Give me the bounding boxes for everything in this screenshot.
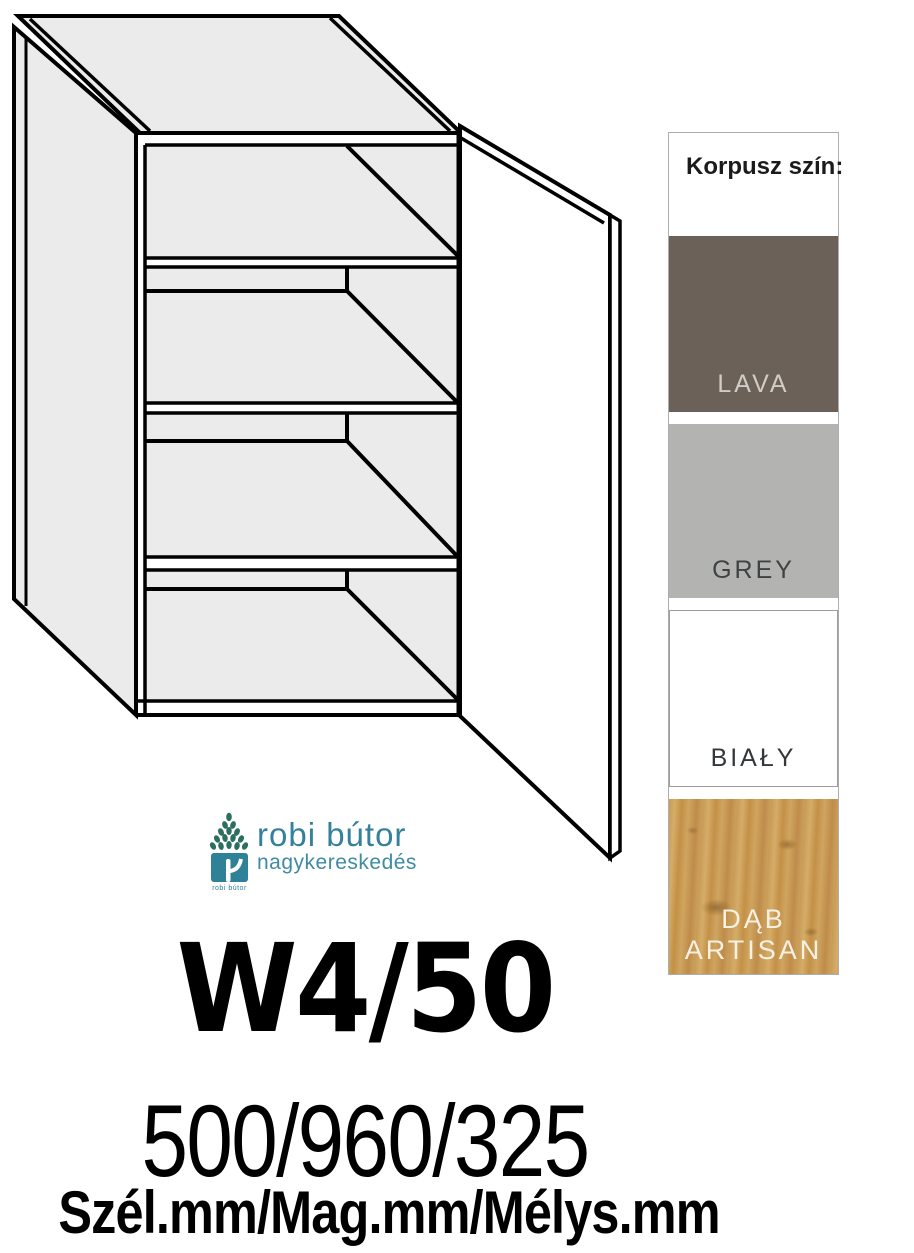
color-swatch-panel: Korpusz szín: LAVA GREY BIAŁY DĄB ARTISA… bbox=[668, 132, 839, 975]
swatch-panel-title: Korpusz szín: bbox=[686, 153, 843, 181]
swatch-grey: GREY bbox=[669, 424, 838, 598]
swatch-label: LAVA bbox=[669, 369, 838, 400]
logo-icon-caption: robi bútor bbox=[212, 885, 247, 892]
swatch-label: DĄB ARTISAN bbox=[669, 904, 838, 966]
product-code: W4/50 bbox=[37, 928, 694, 1050]
cabinet-open-door bbox=[460, 126, 620, 858]
product-dimensions: 500/960/325 bbox=[66, 1090, 665, 1192]
swatch-bialy: BIAŁY bbox=[669, 610, 838, 787]
swatch-label: BIAŁY bbox=[670, 743, 837, 774]
brand-logo: robi bútor robi bútor nagykereskedés bbox=[205, 806, 465, 894]
logo-trunk-square bbox=[211, 853, 248, 882]
logo-subtitle-text: nagykereskedés bbox=[257, 852, 417, 874]
swatch-label: GREY bbox=[669, 555, 838, 586]
product-sheet: robi bútor robi bútor nagykereskedés Kor… bbox=[0, 0, 914, 1253]
logo-brand-text: robi bútor bbox=[257, 818, 417, 852]
dimensions-caption: Szél.mm/Mag.mm/Mélys.mm bbox=[58, 1183, 671, 1243]
cabinet-front-frame bbox=[136, 131, 461, 717]
swatch-lava: LAVA bbox=[669, 236, 838, 412]
swatch-dab-artisan: DĄB ARTISAN bbox=[669, 799, 838, 974]
cabinet-left-panel bbox=[14, 27, 136, 715]
tree-logo-icon: robi bútor bbox=[205, 806, 255, 894]
logo-leaves bbox=[209, 813, 250, 851]
